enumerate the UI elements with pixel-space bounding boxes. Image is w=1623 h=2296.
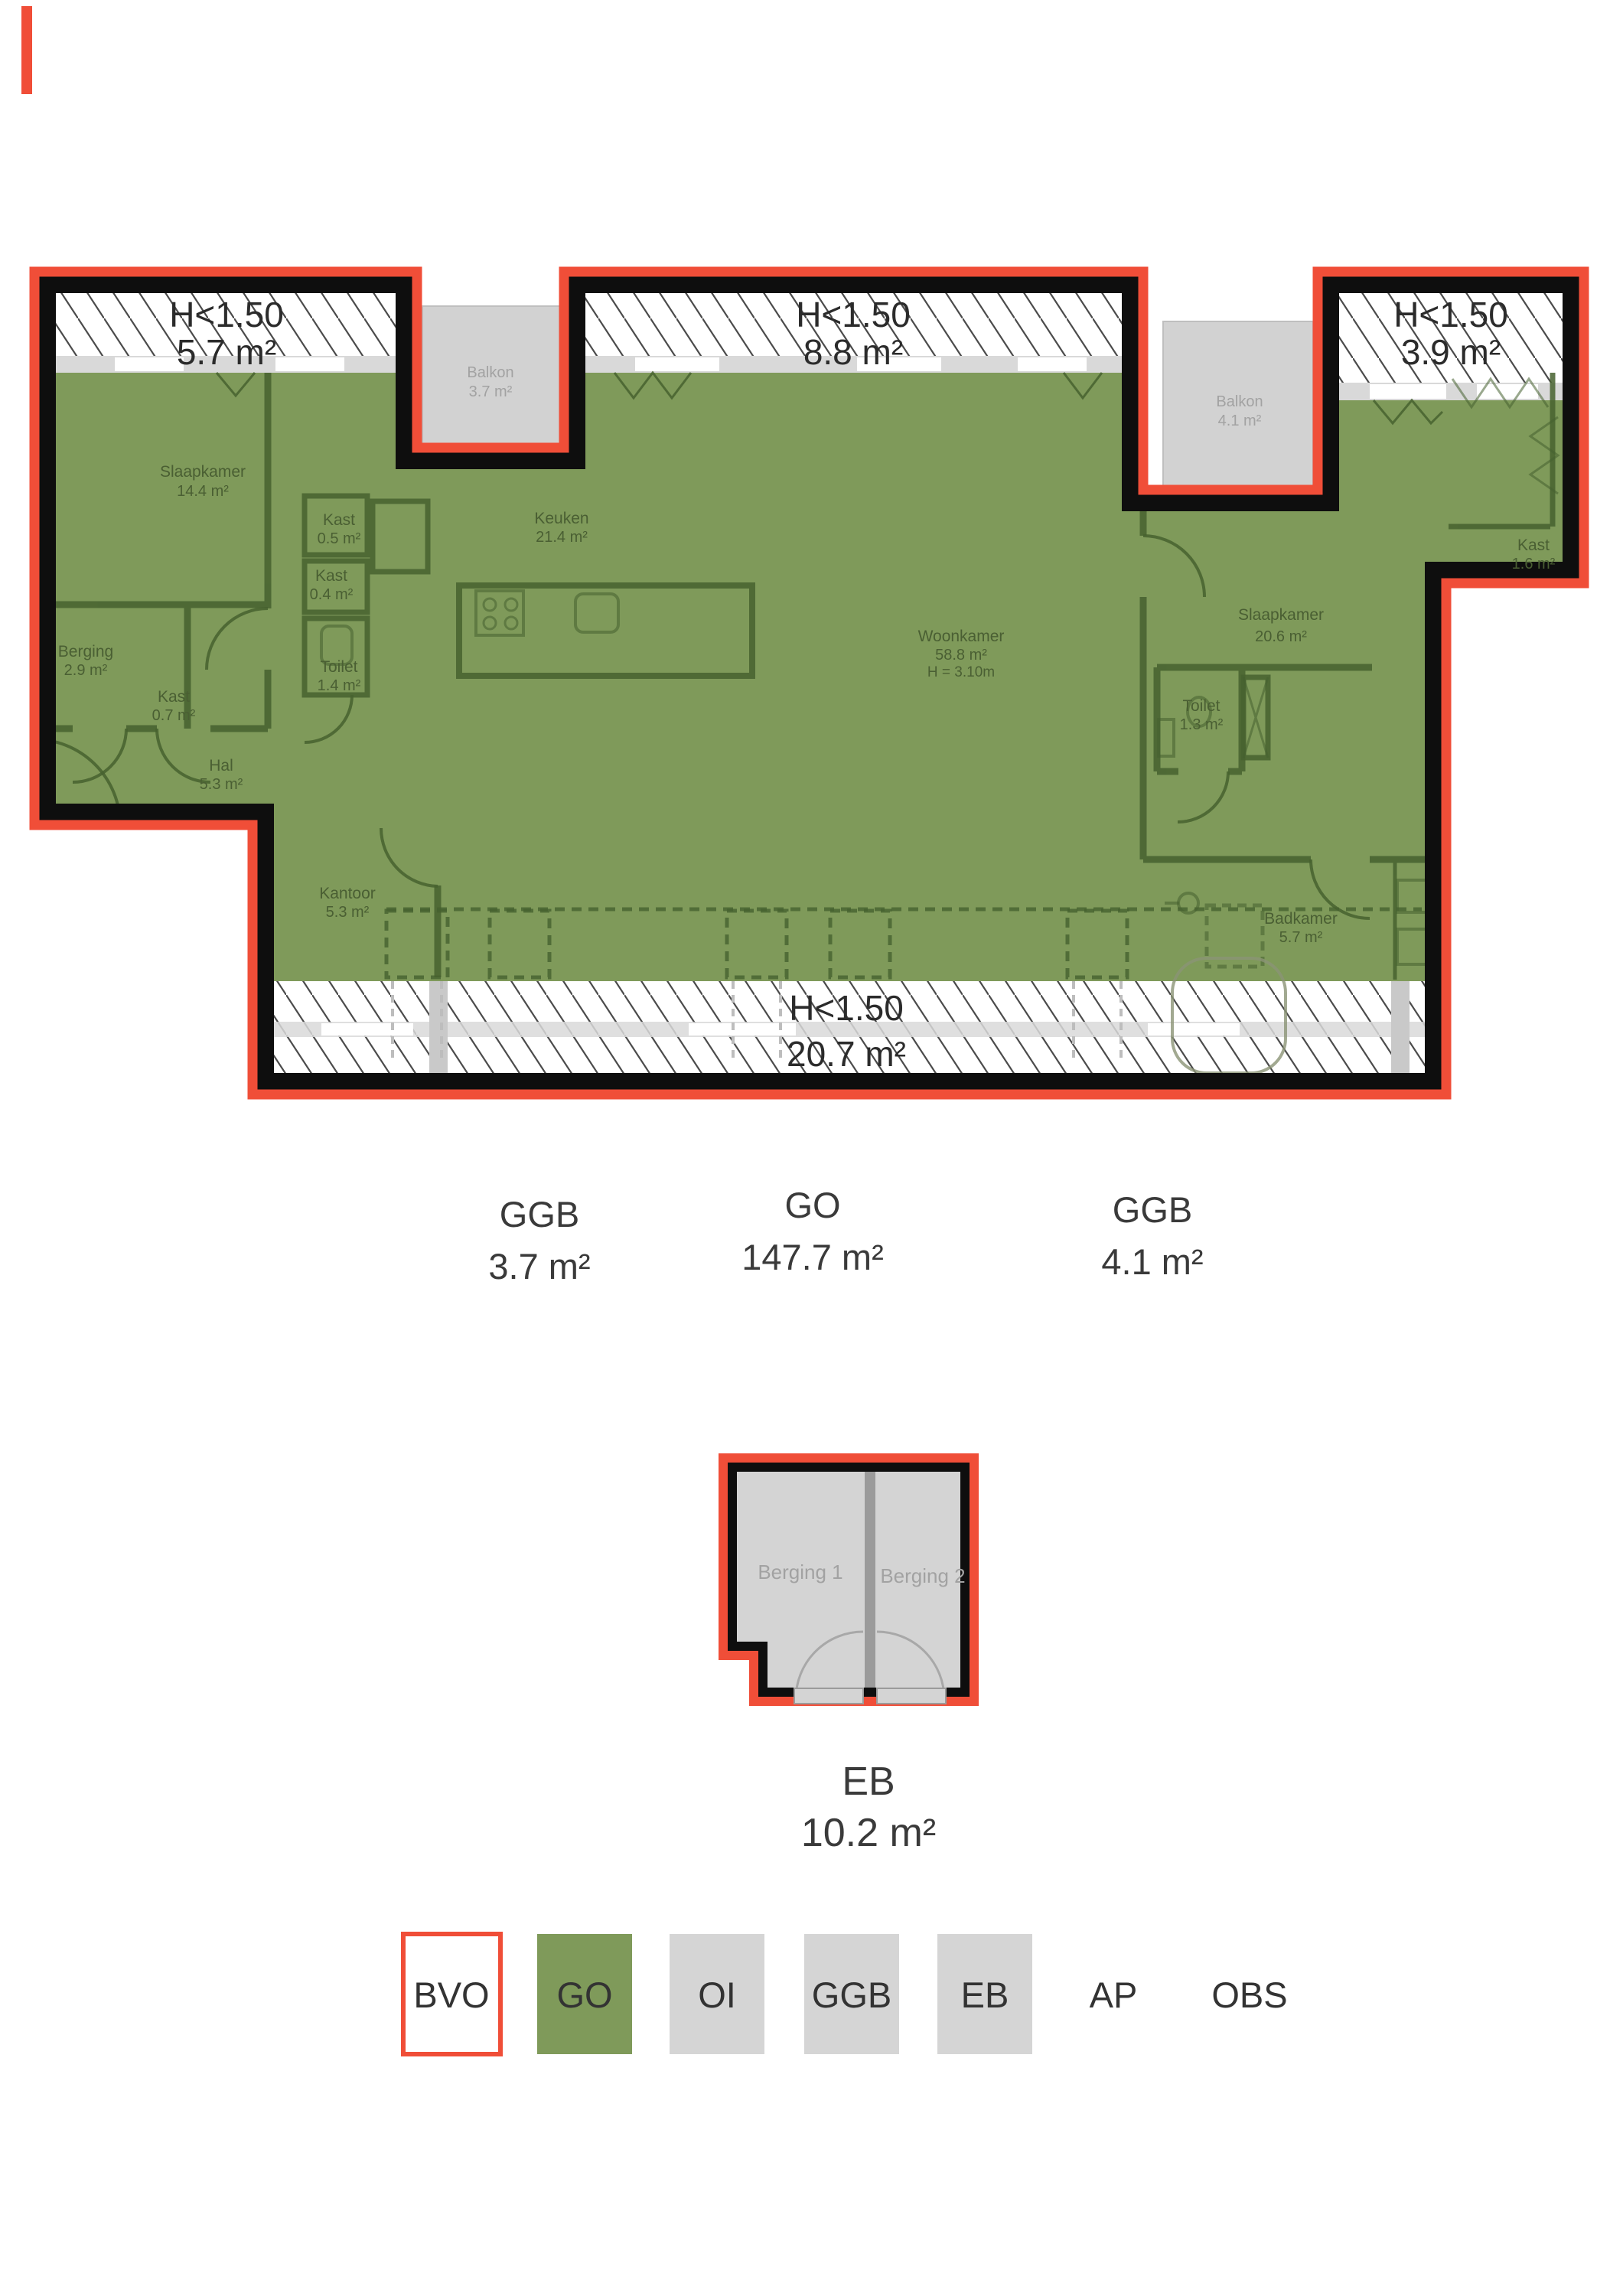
area-summary: GGB 3.7 m² GO 147.7 m² GGB 4.1 m² [488, 1185, 1203, 1287]
page-margin-mark [21, 6, 32, 94]
balcony-2-area: 4.1 m² [1218, 413, 1262, 429]
room-label: Toilet [320, 658, 357, 676]
room-label: Toilet [1182, 697, 1220, 715]
h150-label-right: H<1.50 [1393, 295, 1508, 334]
storage-door-opening-left [794, 1688, 863, 1704]
room-height: H = 3.10m [927, 664, 995, 680]
room-label: Kantoor [319, 885, 376, 902]
summary-area-ggb-left: 3.7 m² [488, 1246, 590, 1287]
room-area: 21.4 m² [536, 529, 588, 546]
room-label: Woonkamer [918, 628, 1005, 645]
storage-summary-code: EB [842, 1760, 895, 1804]
storage-unit-2-label: Berging 2 [880, 1564, 965, 1587]
room-area: 0.7 m² [152, 707, 196, 724]
main-floorplan: Balkon 3.7 m² Balkon 4.1 m² H<1.50 5.7 m… [34, 272, 1584, 1287]
legend-label-ggb: GGB [812, 1975, 891, 2015]
room-area: 58.8 m² [935, 647, 987, 664]
h150-area-middle: 8.8 m² [803, 332, 903, 372]
room-area: 2.9 m² [64, 662, 108, 679]
room-area: 5.7 m² [1279, 929, 1323, 946]
room-label: Kast [1517, 536, 1550, 554]
storage-summary-area: 10.2 m² [801, 1811, 936, 1855]
legend-label-go: GO [556, 1975, 612, 2015]
summary-code-go: GO [784, 1185, 840, 1225]
legend-label-bvo: BVO [413, 1975, 489, 2015]
room-area: 20.6 m² [1255, 628, 1307, 645]
balcony-2-name: Balkon [1216, 393, 1263, 410]
summary-code-ggb-left: GGB [500, 1194, 579, 1234]
room-label: Badkamer [1264, 910, 1338, 928]
room-label: Slaapkamer [1238, 606, 1324, 624]
room-area: 1.3 m² [1180, 716, 1224, 733]
h150-area-left: 5.7 m² [177, 332, 276, 372]
h150-label-middle: H<1.50 [796, 295, 911, 334]
storage-door-opening-right [877, 1688, 946, 1704]
room-area: 5.3 m² [200, 776, 243, 793]
room-area: 14.4 m² [177, 483, 229, 500]
room-area: 0.4 m² [310, 586, 354, 603]
room-label: Berging [58, 643, 113, 660]
balcony-1-name: Balkon [467, 364, 513, 381]
room-area: 1.6 m² [1512, 556, 1556, 572]
h150-label-bottom: H<1.50 [789, 988, 904, 1028]
room-label: Hal [209, 757, 233, 775]
h150-area-bottom: 20.7 m² [787, 1034, 906, 1074]
legend-label-eb: EB [961, 1975, 1009, 2015]
summary-area-go: 147.7 m² [741, 1237, 883, 1277]
room-label: Kast [315, 567, 347, 585]
room-area: 5.3 m² [326, 904, 370, 921]
h150-label-left: H<1.50 [169, 295, 284, 334]
legend-label-oi: OI [698, 1975, 736, 2015]
room-area: 1.4 m² [318, 677, 361, 694]
floorplan-canvas: Balkon 3.7 m² Balkon 4.1 m² H<1.50 5.7 m… [0, 0, 1623, 2296]
legend: BVO GO OI GGB EB AP OBS [403, 1934, 1288, 2054]
room-label: Kast [323, 511, 355, 529]
room-label: Slaapkamer [160, 463, 246, 481]
room-area: 0.5 m² [318, 530, 361, 547]
room-label: Keuken [534, 510, 588, 527]
h150-area-right: 3.9 m² [1401, 332, 1501, 372]
storage-divider-wall [865, 1458, 875, 1701]
balcony-1-area: 3.7 m² [469, 383, 513, 400]
storage-unit-1-label: Berging 1 [758, 1561, 842, 1583]
summary-area-ggb-right: 4.1 m² [1101, 1241, 1203, 1282]
storage-floorplan: Berging 1 Berging 2 EB 10.2 m² [723, 1458, 974, 1855]
summary-code-ggb-right: GGB [1113, 1189, 1192, 1230]
legend-label-obs: OBS [1211, 1975, 1287, 2015]
legend-label-ap: AP [1090, 1975, 1138, 2015]
room-label: Kast [158, 688, 190, 706]
